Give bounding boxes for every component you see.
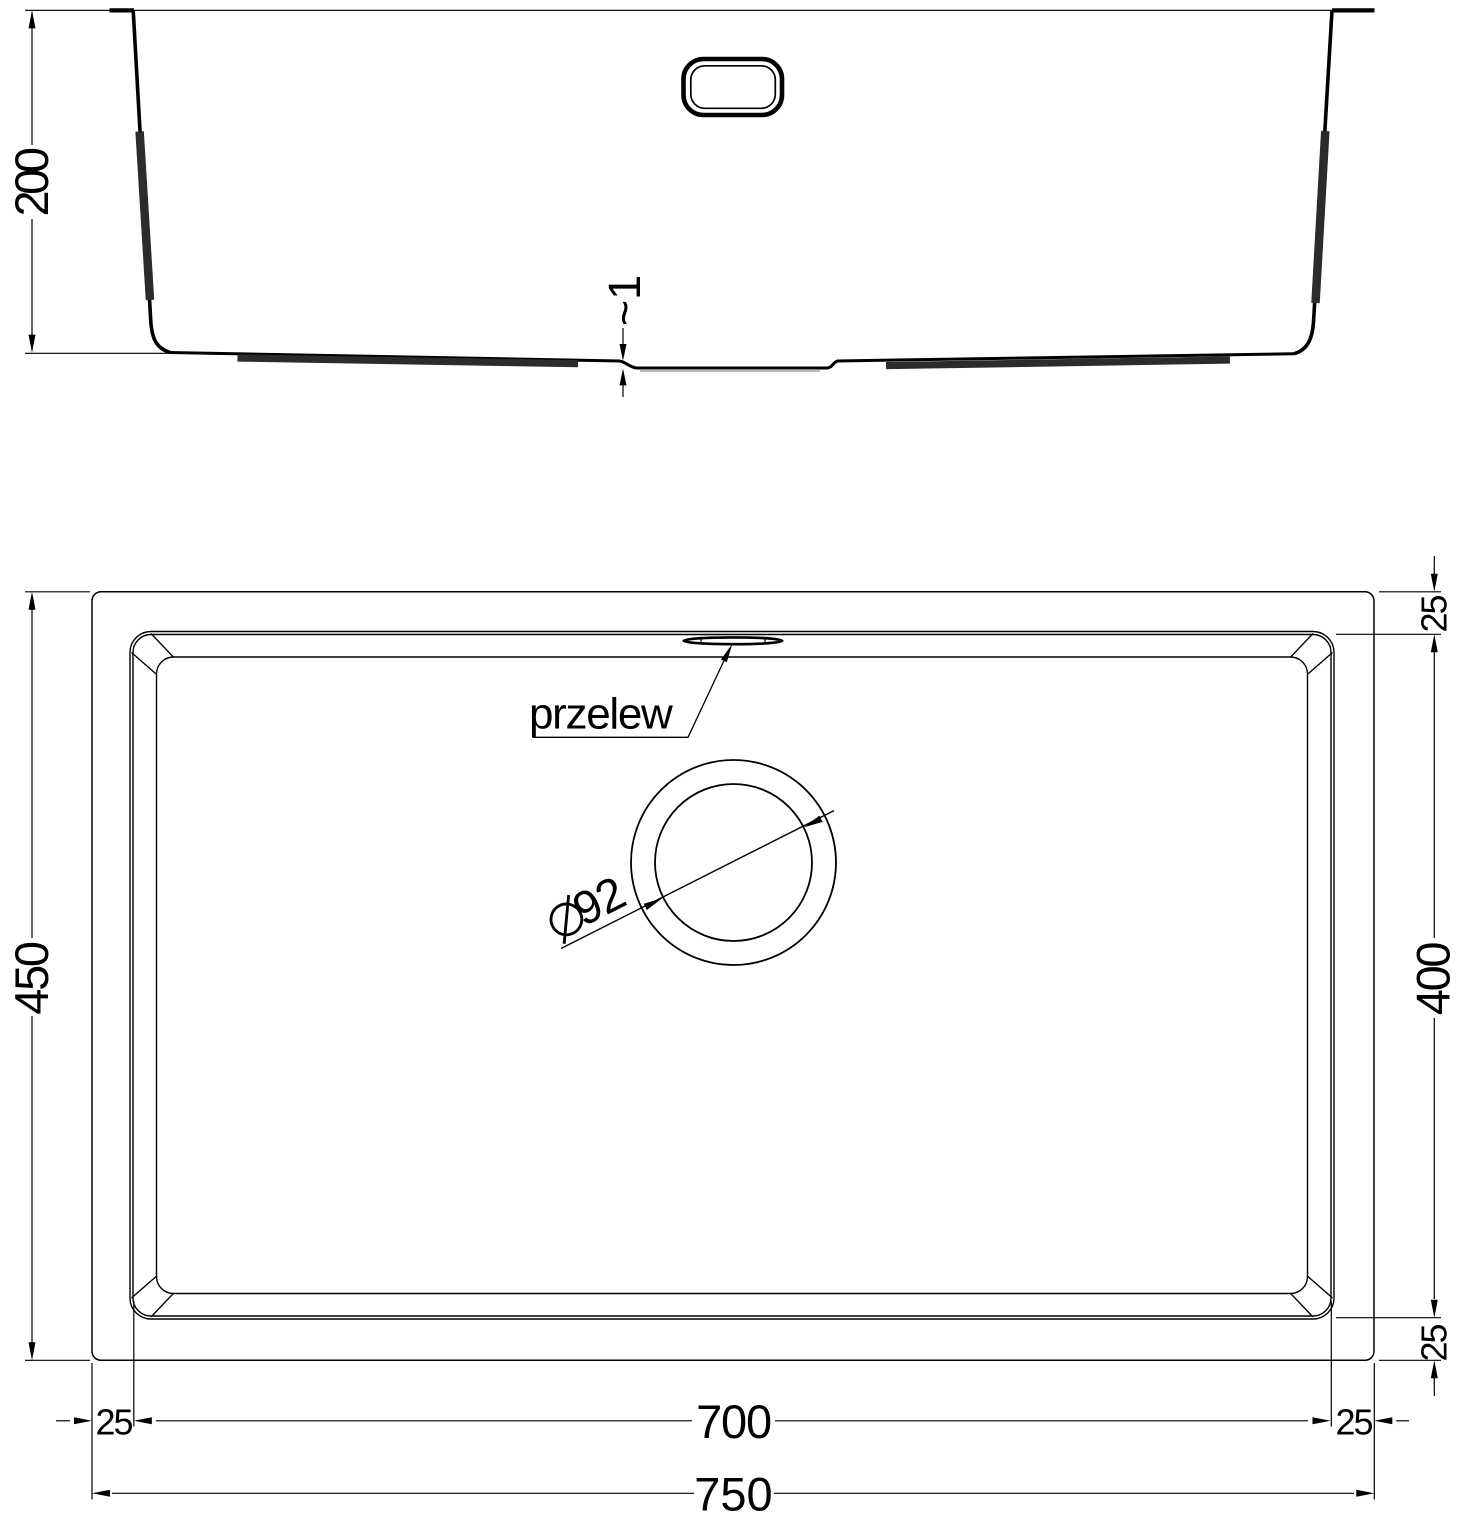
svg-text:~1: ~1 — [599, 275, 650, 326]
svg-text:400: 400 — [1406, 943, 1459, 1016]
svg-text:450: 450 — [5, 942, 58, 1015]
svg-text:25: 25 — [1414, 596, 1455, 633]
svg-text:92: 92 — [564, 866, 633, 936]
svg-text:750: 750 — [694, 1468, 772, 1517]
svg-text:200: 200 — [5, 148, 58, 216]
svg-text:25: 25 — [95, 1402, 132, 1443]
svg-text:25: 25 — [1414, 1325, 1455, 1362]
svg-text:700: 700 — [696, 1395, 771, 1448]
svg-text:przelew: przelew — [529, 690, 673, 739]
svg-text:25: 25 — [1335, 1402, 1372, 1443]
